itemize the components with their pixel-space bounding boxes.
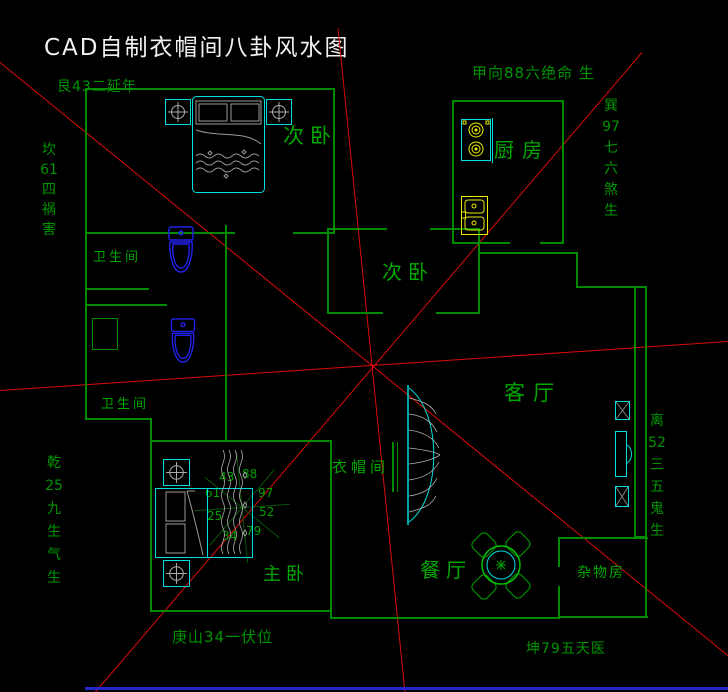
bagua-line-3 (95, 52, 643, 692)
shaft-box (92, 318, 118, 350)
wall-segment (558, 616, 648, 618)
room-label-bedroom-mid: 次卧 (382, 256, 434, 285)
bottom-bar (85, 687, 728, 690)
dining-table-icon (462, 529, 540, 605)
nightstand-icon (165, 99, 191, 125)
direction-label-kun: 坤79五天医 (526, 638, 606, 658)
lamp-icon (164, 460, 189, 485)
wall-segment (576, 286, 636, 288)
wall-segment (452, 100, 454, 244)
wall-segment (397, 442, 398, 492)
wall-segment (558, 537, 648, 539)
room-label-living: 客厅 (504, 377, 562, 407)
wall-segment (576, 252, 578, 288)
wall-segment (478, 228, 480, 314)
wall-segment (540, 242, 564, 244)
wall-segment (150, 610, 332, 612)
wall-segment (327, 312, 383, 314)
direction-label-xun: 巽 97 七 六 煞 生 (599, 96, 623, 222)
wall-segment (150, 440, 152, 612)
page-title: CAD自制衣帽间八卦风水图 (44, 28, 350, 62)
wall-segment (327, 228, 387, 230)
direction-label-li: 离 52 三 五 鬼 生 (645, 410, 669, 542)
room-label-kitchen: 厨房 (494, 134, 550, 163)
wall-segment (327, 228, 329, 314)
cad-feng-shui-floorplan: CAD自制衣帽间八卦风水图 43 88 61 97 25 52 (0, 0, 728, 692)
direction-label-qian: 乾 25 九 生 气 生 (42, 452, 66, 590)
room-label-bath1: 卫生间 (93, 246, 141, 265)
wall-segment (85, 88, 87, 420)
side-table-icon (615, 486, 629, 507)
room-label-storage: 杂物房 (577, 562, 625, 582)
side-table-icon (615, 401, 630, 420)
wall-segment (330, 617, 560, 619)
sink-icon (461, 196, 488, 235)
counter-edge (492, 118, 493, 163)
star-number-97: 97 (258, 487, 273, 499)
wardrobe-icon (219, 450, 247, 554)
wall-segment (558, 537, 560, 567)
wall-segment (85, 418, 152, 420)
wall-segment (478, 252, 578, 254)
lamp-icon (267, 100, 291, 124)
double-bed-icon (192, 96, 265, 193)
wall-segment (87, 304, 167, 306)
cabinet-knob-icon (626, 444, 634, 464)
star-number-52: 52 (259, 506, 274, 518)
wall-segment (333, 88, 335, 234)
wall-segment (87, 288, 149, 290)
wall-segment (558, 586, 560, 618)
master-bed-icon (157, 490, 206, 556)
wall-segment (150, 440, 332, 442)
wall-segment (634, 286, 647, 288)
wall-segment (452, 100, 564, 102)
nightstand-icon (163, 560, 190, 587)
nightstand-icon (266, 99, 292, 125)
tv-cabinet-icon (406, 384, 448, 526)
wall-segment (562, 100, 564, 244)
wall-segment (225, 225, 227, 442)
room-label-bath2: 卫生间 (101, 393, 149, 412)
direction-label-facing: 甲向88六绝命 生 (472, 62, 595, 83)
toilet-icon (167, 226, 195, 276)
lamp-icon (166, 100, 190, 124)
bed-edge (207, 488, 208, 558)
direction-label-gen: 艮43二延年 (57, 76, 137, 96)
bagua-line-2 (338, 28, 406, 692)
wall-segment (85, 232, 235, 234)
nightstand-icon (163, 459, 190, 486)
direction-label-gengshan: 庚山34一伏位 (172, 626, 273, 647)
wall-segment (436, 312, 480, 314)
toilet-icon (169, 318, 197, 366)
wall-segment (150, 418, 152, 442)
room-label-master: 主卧 (263, 560, 309, 586)
room-label-cloakroom: 衣帽间 (332, 456, 389, 477)
wall-segment (452, 242, 510, 244)
wall-segment (392, 442, 394, 492)
stove-icon (461, 119, 491, 161)
lamp-icon (164, 561, 189, 586)
wall-segment (634, 286, 636, 538)
direction-label-kan: 坎 61 四 祸 害 (37, 140, 61, 240)
